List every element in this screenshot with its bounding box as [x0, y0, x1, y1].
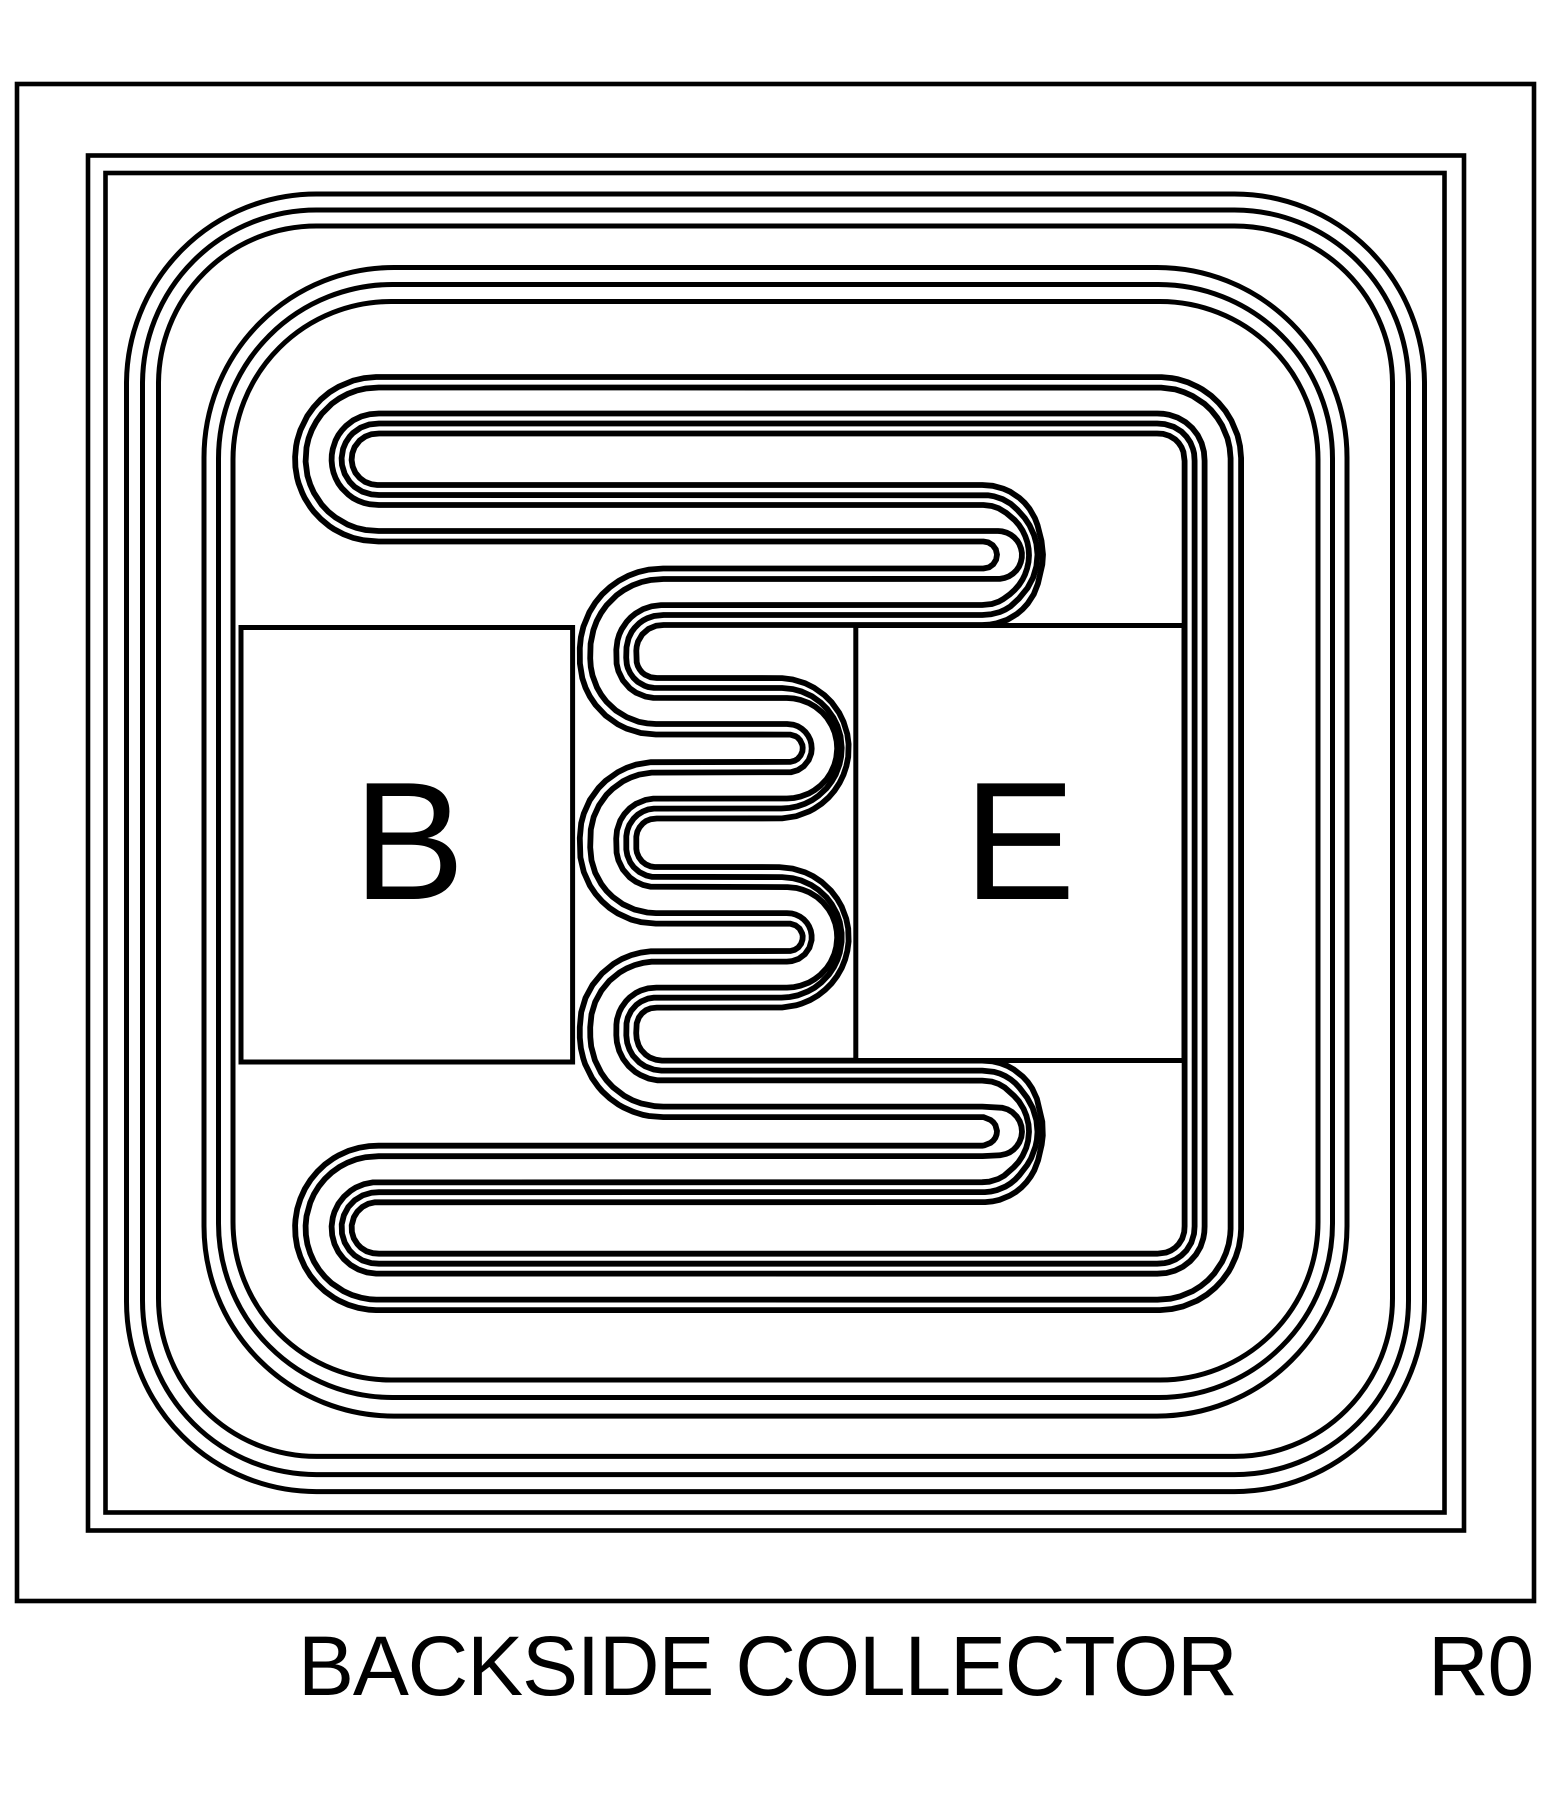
svg-text:R0: R0 — [1428, 1619, 1533, 1713]
svg-text:E: E — [963, 747, 1075, 935]
svg-text:B: B — [353, 747, 465, 935]
svg-text:BACKSIDE COLLECTOR: BACKSIDE COLLECTOR — [298, 1619, 1236, 1713]
